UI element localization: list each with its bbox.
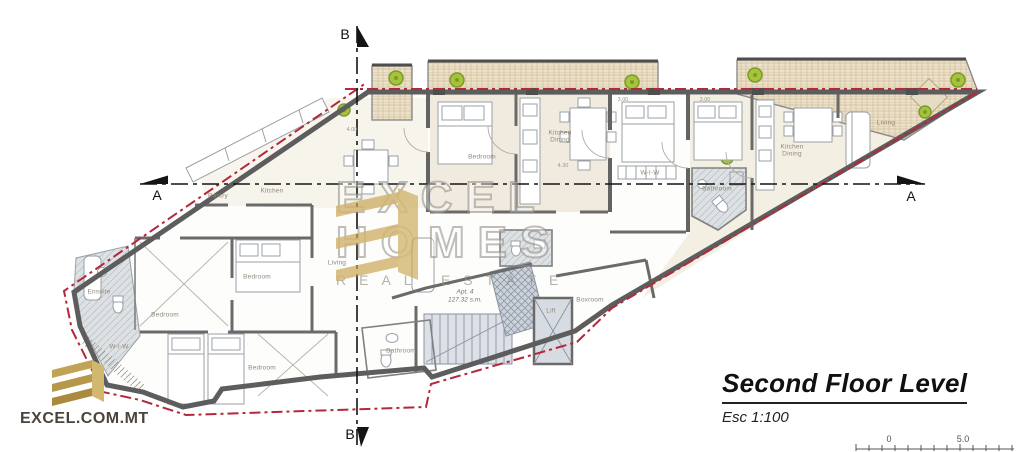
room-label: Living — [877, 119, 895, 126]
excel-logo-icon — [52, 358, 116, 406]
drawing-title: Second Floor Level — [722, 368, 967, 404]
toilet — [511, 241, 521, 256]
bed — [622, 102, 674, 162]
apartment-area: 127.32 s.m. — [448, 297, 482, 304]
logo-text: EXCEL.COM.MT — [20, 410, 190, 428]
section-arrow-b-top — [357, 26, 369, 47]
section-marker-b-bottom: B — [345, 426, 354, 442]
section-arrow-a-left — [140, 176, 168, 185]
dimension-label: 3.00 — [618, 97, 629, 103]
room-label: Bedroom — [243, 273, 271, 280]
room-label: Living — [328, 259, 346, 266]
section-arrow-b-bottom — [357, 427, 369, 447]
room-label: Lift — [546, 307, 555, 314]
sofa — [412, 238, 434, 292]
kitchen-counter — [520, 98, 540, 204]
section-arrow-a-right — [897, 176, 925, 185]
sink — [386, 334, 398, 343]
sink — [534, 240, 545, 248]
section-marker-b-top: B — [340, 26, 349, 42]
room-label: Kitchen Dining — [775, 144, 809, 159]
scale-bar-zero: 0 — [886, 434, 891, 444]
bed — [236, 240, 300, 292]
section-marker-a-left: A — [152, 187, 161, 203]
title-block: Second Floor Level Esc 1:100 — [722, 368, 982, 426]
room-label: W-I-W — [640, 169, 659, 176]
room-label: Boxroom — [576, 296, 603, 303]
bed — [208, 334, 244, 404]
dimension-label: 4.00 — [347, 127, 358, 133]
room-label: Bedroom — [151, 311, 179, 318]
dimension-label: 3.00 — [700, 97, 711, 103]
dimension-label: 4.30 — [558, 163, 569, 169]
section-marker-a-right: A — [906, 188, 915, 204]
room-label: Bathroom — [702, 185, 732, 192]
kitchen-counter — [756, 100, 774, 190]
scale-bar — [856, 444, 1014, 451]
room-label: W-I-W — [109, 343, 128, 350]
bed — [694, 102, 742, 160]
room-label: Bathroom — [386, 347, 416, 354]
company-logo: EXCEL.COM.MT — [20, 358, 190, 428]
drawing-scale: Esc 1:100 — [722, 409, 982, 426]
room-label: Ensuite — [87, 288, 110, 295]
room-label: Bedroom — [248, 364, 276, 371]
room-label: Pantry — [208, 192, 228, 199]
room-label: Bedroom — [468, 153, 496, 160]
room-label: Kitchen — [260, 187, 283, 194]
apartment-name: Apt. 4 — [457, 289, 474, 296]
toilet — [113, 296, 123, 313]
floor-plan-page: Pantry Kitchen Bedroom Living Ensuite Be… — [0, 0, 1024, 452]
scale-bar-five: 5.0 — [957, 434, 970, 444]
room-label: Kitchen Dining — [543, 130, 577, 145]
